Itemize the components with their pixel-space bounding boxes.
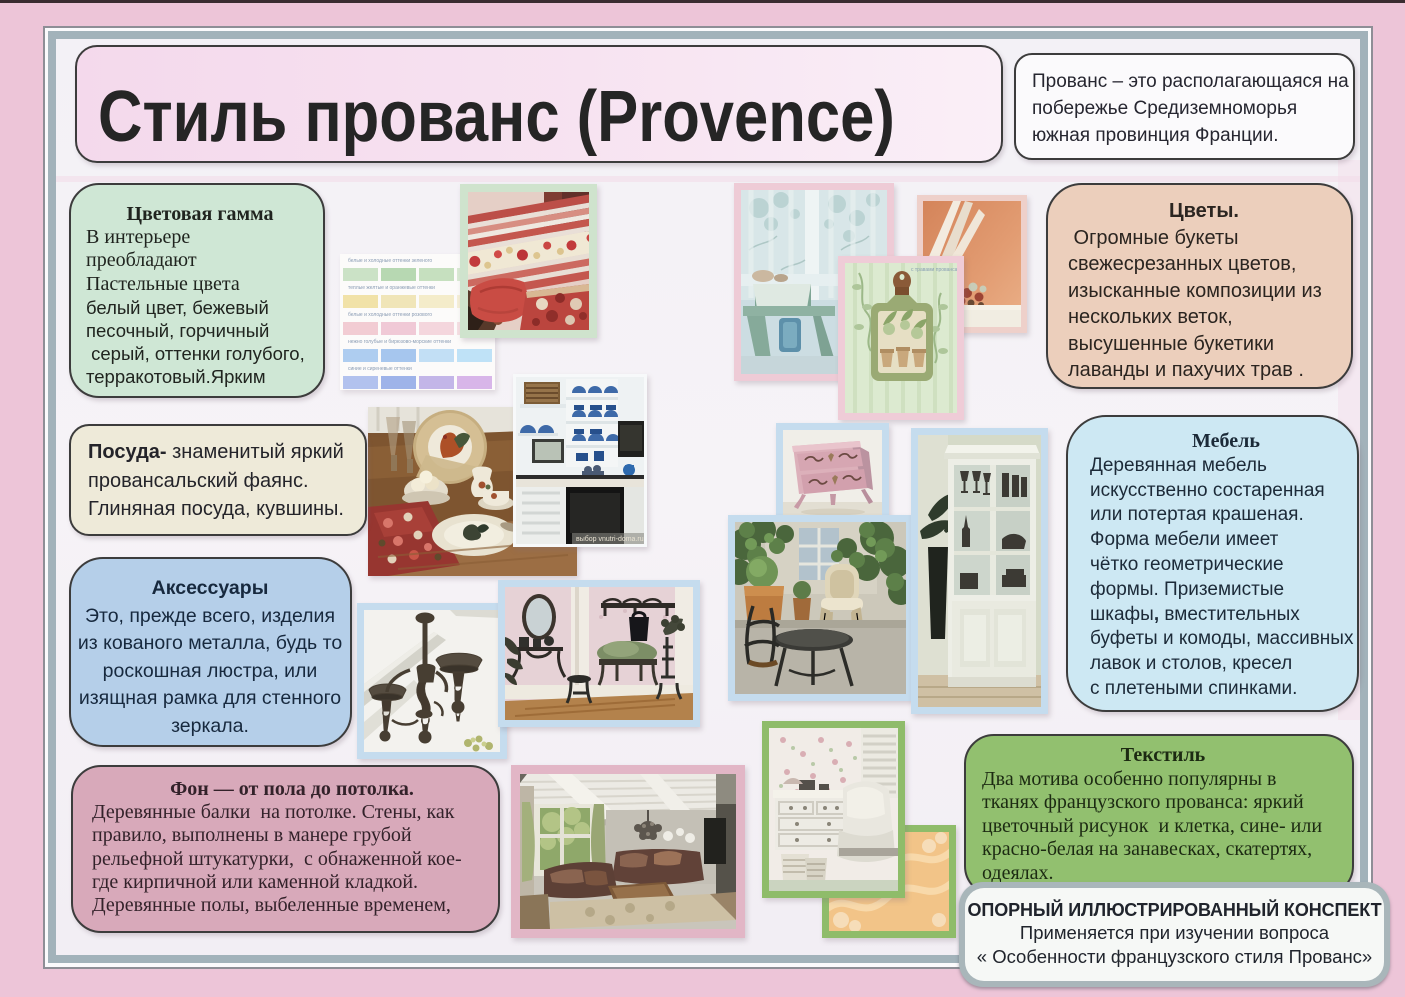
svg-text:выбор vnutri-doma.ru: выбор vnutri-doma.ru [576,535,644,543]
svg-text:с травами прованса: с травами прованса [911,267,957,273]
